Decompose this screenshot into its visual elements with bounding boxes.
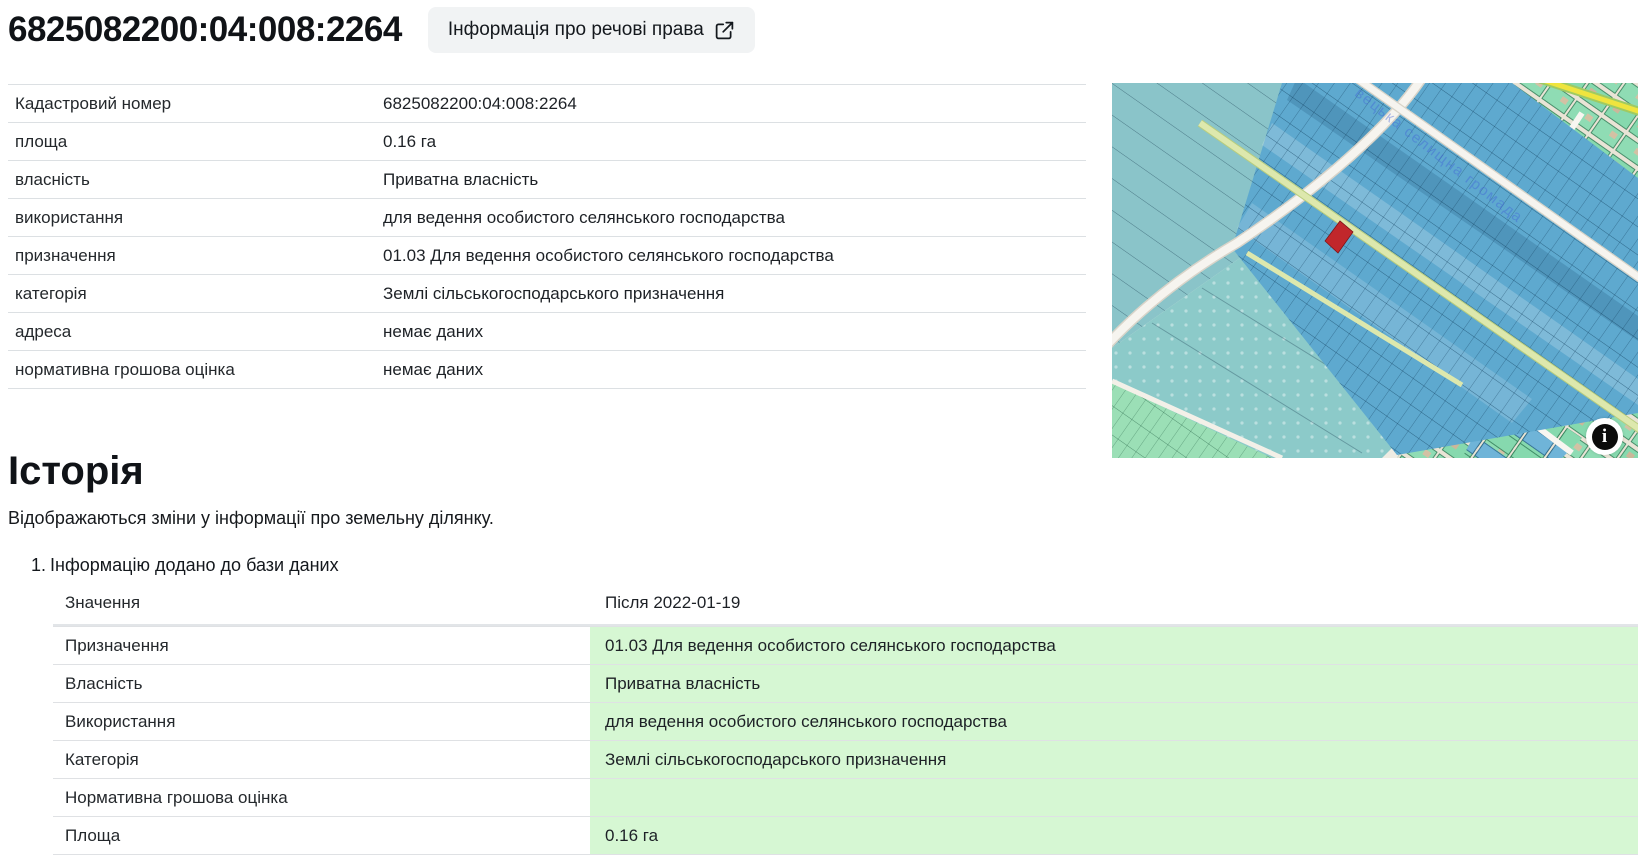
- history-entry-title-text: Інформацію додано до бази даних: [50, 555, 339, 575]
- table-row: Категорія Землі сільськогосподарського п…: [53, 740, 1638, 778]
- page-header: 6825082200:04:008:2264 Інформація про ре…: [0, 0, 1638, 56]
- row-value: 01.03 Для ведення особистого селянського…: [383, 246, 1086, 266]
- row-label: Нормативна грошова оцінка: [53, 779, 590, 816]
- parcel-details-table: Кадастровий номер 6825082200:04:008:2264…: [8, 84, 1086, 389]
- table-row: Використання для ведення особистого селя…: [53, 702, 1638, 740]
- history-table: Значення Після 2022-01-19 Призначення 01…: [53, 582, 1638, 855]
- history-entry: 1. Інформацію додано до бази даних Значе…: [53, 555, 1638, 855]
- row-label: власність: [8, 170, 383, 190]
- table-row: власність Приватна власність: [8, 160, 1086, 198]
- history-header-label: Значення: [53, 582, 590, 624]
- row-label: використання: [8, 208, 383, 228]
- row-value: немає даних: [383, 322, 1086, 342]
- history-entry-title: 1. Інформацію додано до бази даних: [50, 555, 1638, 576]
- cadastral-map[interactable]: вецька селищна громада i: [1112, 83, 1638, 458]
- table-row: нормативна грошова оцінка немає даних: [8, 350, 1086, 389]
- history-header-row: Значення Після 2022-01-19: [53, 582, 1638, 626]
- row-value: 0.16 га: [383, 132, 1086, 152]
- table-row: Площа 0.16 га: [53, 816, 1638, 855]
- row-value: для ведення особистого селянського госпо…: [383, 208, 1086, 228]
- history-section: Історія Відображаються зміни у інформаці…: [8, 449, 1638, 855]
- row-label: адреса: [8, 322, 383, 342]
- row-value: Землі сільськогосподарського призначення: [590, 741, 1638, 778]
- info-icon: i: [1592, 424, 1618, 450]
- map-info-button[interactable]: i: [1586, 418, 1623, 455]
- table-row: використання для ведення особистого селя…: [8, 198, 1086, 236]
- row-value: 01.03 Для ведення особистого селянського…: [590, 627, 1638, 664]
- row-value: Землі сільськогосподарського призначення: [383, 284, 1086, 304]
- table-row: призначення 01.03 Для ведення особистого…: [8, 236, 1086, 274]
- external-link-icon: [714, 20, 735, 41]
- row-label: призначення: [8, 246, 383, 266]
- table-row: площа 0.16 га: [8, 122, 1086, 160]
- table-row: категорія Землі сільськогосподарського п…: [8, 274, 1086, 312]
- table-row: адреса немає даних: [8, 312, 1086, 350]
- row-label: Площа: [53, 817, 590, 854]
- row-value: Приватна власність: [590, 665, 1638, 702]
- row-value: немає даних: [383, 360, 1086, 380]
- history-entry-index: 1.: [31, 555, 46, 576]
- table-row: Нормативна грошова оцінка: [53, 778, 1638, 816]
- row-value: 0.16 га: [590, 817, 1638, 854]
- row-label: Власність: [53, 665, 590, 702]
- row-label: категорія: [8, 284, 383, 304]
- row-value: [590, 779, 1638, 816]
- row-label: Категорія: [53, 741, 590, 778]
- rights-info-button[interactable]: Інформація про речові права: [428, 7, 755, 53]
- row-value: 6825082200:04:008:2264: [383, 94, 1086, 114]
- row-value: Приватна власність: [383, 170, 1086, 190]
- page-title: 6825082200:04:008:2264: [8, 10, 402, 50]
- table-row: Власність Приватна власність: [53, 664, 1638, 702]
- row-value: для ведення особистого селянського госпо…: [590, 703, 1638, 740]
- row-label: площа: [8, 132, 383, 152]
- table-row: Призначення 01.03 Для ведення особистого…: [53, 626, 1638, 664]
- table-row: Кадастровий номер 6825082200:04:008:2264: [8, 84, 1086, 122]
- history-header-value: Після 2022-01-19: [590, 582, 1638, 624]
- history-description: Відображаються зміни у інформації про зе…: [8, 508, 1638, 529]
- row-label: нормативна грошова оцінка: [8, 360, 383, 380]
- rights-info-button-label: Інформація про речові права: [448, 19, 704, 41]
- row-label: Призначення: [53, 627, 590, 664]
- row-label: Використання: [53, 703, 590, 740]
- row-label: Кадастровий номер: [8, 94, 383, 114]
